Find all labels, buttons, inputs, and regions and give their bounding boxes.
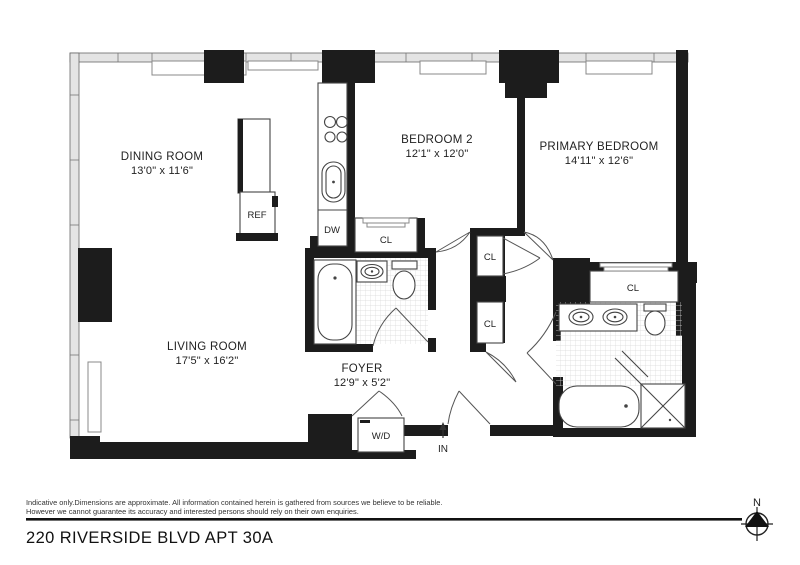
entry-door <box>448 391 490 424</box>
hall-closet-lower-label: CL <box>484 319 496 330</box>
primary-closet-label: CL <box>627 283 639 294</box>
window-sill-bedroom2 <box>420 61 486 74</box>
footer: Indicative only.Dimensions are approxima… <box>26 497 773 547</box>
primary-bathtub-icon <box>559 386 639 427</box>
primary-bathroom-door <box>527 312 556 384</box>
living-room-label: LIVING ROOM <box>167 341 247 353</box>
window-sill-living <box>88 362 101 432</box>
dining-room-label: DINING ROOM <box>121 151 204 163</box>
dishwasher-label: DW <box>324 225 340 236</box>
disclaimer-line2: However we cannot guarantee its accuracy… <box>26 507 359 516</box>
entry-in-label: IN <box>438 444 448 455</box>
window-sill-kitchen <box>248 61 318 70</box>
bedroom2-closet-label: CL <box>380 235 392 246</box>
hall-closet-upper-label: CL <box>484 252 496 263</box>
floor-plan-drawing: DW REF <box>0 0 800 565</box>
foyer-label: FOYER <box>341 363 382 375</box>
disclaimer-line1: Indicative only.Dimensions are approxima… <box>26 498 442 507</box>
primary-bedroom-dims: 14'11" x 12'6" <box>565 155 633 167</box>
primary-toilet-icon <box>644 304 666 335</box>
hall-sink-icon <box>357 261 387 282</box>
hall-bathroom <box>314 258 428 344</box>
primary-bathroom <box>556 302 685 428</box>
hall-closet-lower-door <box>486 352 516 382</box>
double-vanity-icon <box>559 304 637 331</box>
kitchen-counter <box>318 83 347 246</box>
window-sill-primary <box>586 61 652 74</box>
washer-dryer-label: W/D <box>372 431 391 442</box>
kitchen: DW REF <box>236 83 348 246</box>
compass-north-label: N <box>753 497 761 509</box>
hall-toilet-icon <box>392 261 417 299</box>
bathtub-icon <box>314 260 356 344</box>
primary-bedroom-label: PRIMARY BEDROOM <box>539 141 658 153</box>
compass-icon: N <box>741 497 773 541</box>
address-title: 220 RIVERSIDE BLVD APT 30A <box>26 529 273 547</box>
hall-closet-upper-door <box>503 238 540 274</box>
footer-divider <box>26 518 742 521</box>
bedroom2-dims: 12'1" x 12'0" <box>406 148 469 160</box>
bedroom2-door <box>436 232 470 252</box>
living-room-dims: 17'5" x 16'2" <box>176 355 239 367</box>
bedroom2-label: BEDROOM 2 <box>401 134 473 146</box>
floor-plan-page: DW REF <box>0 0 800 565</box>
dining-room-dims: 13'0" x 11'6" <box>131 165 193 177</box>
primary-bedroom-door <box>524 232 553 260</box>
refrigerator-label: REF <box>248 210 267 221</box>
foyer-dims: 12'9" x 5'2" <box>334 377 391 389</box>
washer-dryer-door <box>352 391 402 416</box>
